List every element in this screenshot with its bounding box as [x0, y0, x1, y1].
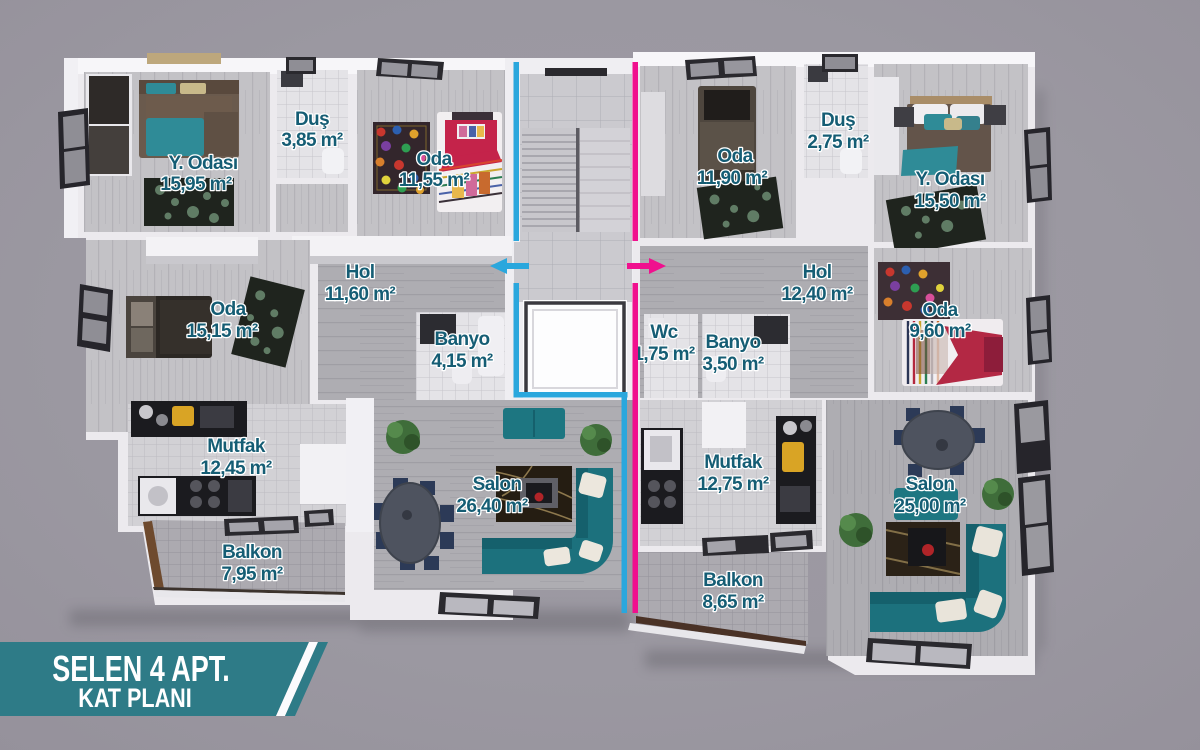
svg-text:1,75 m²: 1,75 m² — [633, 344, 695, 365]
svg-text:9,60 m²: 9,60 m² — [909, 321, 971, 342]
svg-text:Banyo: Banyo — [705, 332, 760, 353]
svg-text:15,95 m²: 15,95 m² — [160, 174, 232, 195]
svg-text:Oda: Oda — [717, 146, 753, 167]
svg-text:11,55 m²: 11,55 m² — [399, 170, 469, 191]
svg-text:3,85 m²: 3,85 m² — [281, 130, 343, 151]
svg-text:Wc: Wc — [650, 322, 678, 343]
svg-text:Oda: Oda — [922, 300, 958, 321]
svg-text:Duş: Duş — [821, 110, 855, 131]
svg-text:Duş: Duş — [295, 109, 329, 130]
svg-text:Salon: Salon — [906, 474, 955, 495]
svg-text:7,95 m²: 7,95 m² — [221, 564, 283, 585]
svg-text:Balkon: Balkon — [703, 570, 763, 591]
svg-text:Banyo: Banyo — [434, 329, 489, 350]
svg-text:3,50 m²: 3,50 m² — [702, 354, 764, 375]
svg-text:Hol: Hol — [803, 262, 832, 283]
svg-text:12,40 m²: 12,40 m² — [781, 284, 853, 305]
svg-text:Y. Odası: Y. Odası — [915, 169, 984, 190]
svg-text:Mutfak: Mutfak — [704, 452, 763, 473]
svg-text:25,00 m²: 25,00 m² — [894, 496, 966, 517]
svg-text:11,90 m²: 11,90 m² — [697, 168, 767, 189]
svg-text:Oda: Oda — [416, 149, 452, 170]
svg-text:Hol: Hol — [346, 262, 375, 283]
svg-text:15,15 m²: 15,15 m² — [186, 321, 258, 342]
svg-text:2,75 m²: 2,75 m² — [807, 132, 869, 153]
svg-text:Mutfak: Mutfak — [207, 436, 266, 457]
svg-text:SELEN 4 APT.: SELEN 4 APT. — [52, 648, 229, 689]
svg-text:Salon: Salon — [473, 474, 522, 495]
svg-text:26,40 m²: 26,40 m² — [456, 496, 528, 517]
svg-text:8,65 m²: 8,65 m² — [702, 592, 764, 613]
svg-text:12,75 m²: 12,75 m² — [697, 474, 769, 495]
svg-text:KAT PLANI: KAT PLANI — [78, 684, 192, 714]
svg-text:Oda: Oda — [210, 299, 246, 320]
svg-text:12,45 m²: 12,45 m² — [200, 458, 272, 479]
svg-text:15,50 m²: 15,50 m² — [914, 191, 986, 212]
svg-text:4,15 m²: 4,15 m² — [431, 351, 493, 372]
svg-text:Y. Odası: Y. Odası — [168, 153, 237, 174]
svg-text:Balkon: Balkon — [222, 542, 282, 563]
svg-text:11,60 m²: 11,60 m² — [325, 284, 395, 305]
